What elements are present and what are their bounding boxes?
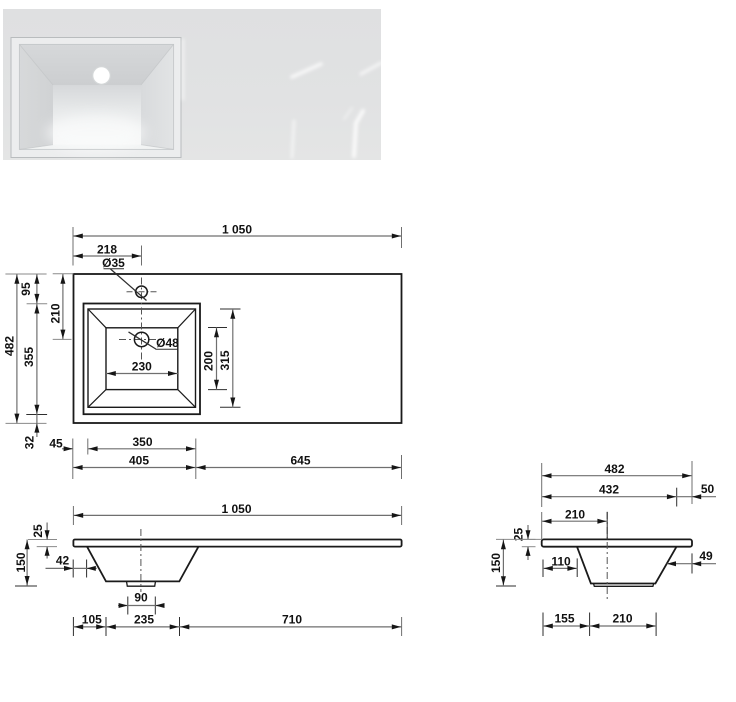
svg-text:105: 105 [82,613,102,627]
svg-text:Ø48: Ø48 [156,336,179,350]
svg-text:Ø35: Ø35 [102,256,125,270]
svg-text:50: 50 [701,482,715,496]
svg-text:210: 210 [565,508,585,522]
svg-text:210: 210 [612,612,632,626]
svg-text:218: 218 [97,243,117,257]
svg-text:230: 230 [132,360,152,374]
svg-text:155: 155 [554,612,574,626]
svg-text:482: 482 [604,462,624,476]
svg-text:95: 95 [19,282,33,296]
svg-text:210: 210 [48,303,62,323]
svg-text:200: 200 [202,351,216,371]
svg-text:32: 32 [22,436,36,450]
svg-text:432: 432 [599,483,619,497]
svg-text:235: 235 [134,613,154,627]
svg-text:315: 315 [218,350,232,370]
svg-text:25: 25 [31,524,45,538]
svg-text:710: 710 [282,613,302,627]
svg-text:90: 90 [134,591,148,605]
svg-text:45: 45 [49,436,63,450]
svg-text:49: 49 [699,549,713,563]
svg-text:1 050: 1 050 [221,502,251,516]
svg-text:110: 110 [551,555,571,569]
svg-text:482: 482 [2,336,16,356]
svg-text:1 050: 1 050 [222,223,252,237]
svg-text:350: 350 [132,435,152,449]
svg-text:150: 150 [14,552,28,572]
svg-text:150: 150 [489,553,503,573]
svg-text:355: 355 [22,347,36,367]
svg-text:42: 42 [56,554,70,568]
svg-text:405: 405 [129,454,149,468]
svg-text:645: 645 [290,454,310,468]
